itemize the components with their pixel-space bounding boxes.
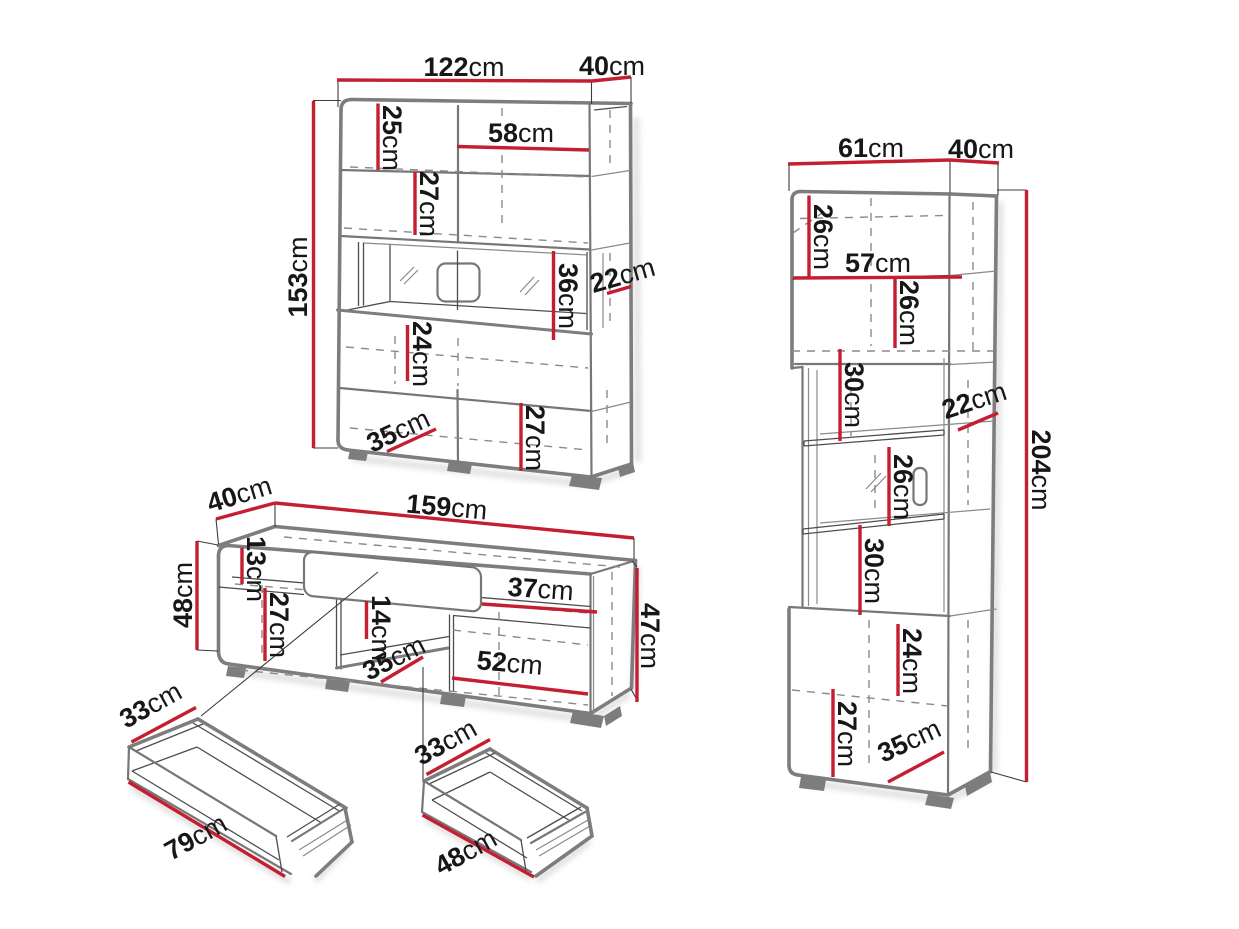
svg-text:30cm: 30cm bbox=[839, 362, 869, 428]
svg-text:26cm: 26cm bbox=[888, 454, 918, 520]
svg-text:36cm: 36cm bbox=[553, 263, 583, 329]
svg-text:48cm: 48cm bbox=[168, 562, 198, 628]
svg-text:30cm: 30cm bbox=[859, 538, 889, 604]
svg-text:52cm: 52cm bbox=[476, 645, 544, 681]
svg-text:24cm: 24cm bbox=[407, 321, 437, 387]
svg-text:40cm: 40cm bbox=[579, 51, 645, 81]
svg-text:37cm: 37cm bbox=[507, 572, 575, 607]
svg-text:57cm: 57cm bbox=[845, 248, 911, 278]
svg-text:47cm: 47cm bbox=[635, 603, 665, 669]
svg-text:153cm: 153cm bbox=[283, 236, 313, 317]
svg-text:27cm: 27cm bbox=[414, 171, 444, 237]
svg-text:25cm: 25cm bbox=[377, 105, 407, 171]
svg-text:27cm: 27cm bbox=[832, 701, 862, 767]
svg-text:26cm: 26cm bbox=[894, 280, 924, 346]
svg-text:27cm: 27cm bbox=[520, 405, 550, 471]
svg-text:24cm: 24cm bbox=[897, 628, 927, 694]
svg-text:27cm: 27cm bbox=[264, 592, 294, 658]
svg-text:26cm: 26cm bbox=[808, 204, 838, 270]
svg-text:61cm: 61cm bbox=[838, 133, 904, 163]
svg-text:40cm: 40cm bbox=[948, 134, 1014, 164]
svg-text:204cm: 204cm bbox=[1026, 429, 1056, 510]
svg-text:58cm: 58cm bbox=[488, 118, 554, 148]
svg-text:122cm: 122cm bbox=[423, 52, 504, 82]
